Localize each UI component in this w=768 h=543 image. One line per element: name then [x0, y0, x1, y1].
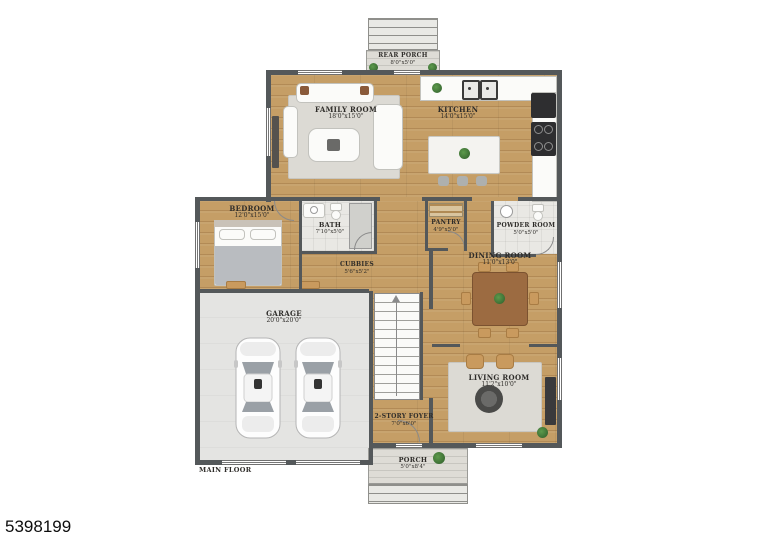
headboard-icon [214, 220, 282, 227]
bench-icon [226, 281, 246, 289]
wall-dining-stub-a [432, 344, 460, 347]
pillow-icon [300, 86, 309, 95]
stool-icon [457, 176, 468, 186]
wall-bed-bath [299, 201, 302, 291]
kitchen-sink-icon [480, 80, 498, 100]
chair-icon [461, 292, 471, 305]
car-icon [234, 336, 282, 440]
burner-icon [534, 125, 543, 134]
counter-plant-icon [432, 83, 442, 93]
pillow-icon [360, 86, 369, 95]
burner-icon [544, 125, 553, 134]
room-label-cubbies: CUBBIES 5'6"x5'2" [340, 262, 374, 275]
plant-icon [537, 427, 548, 438]
powder-sink-icon [500, 205, 513, 218]
room-label-kitchen: KITCHEN 14'0"x15'0" [438, 106, 479, 121]
garage-door-right [296, 460, 360, 465]
wall-dining-left [429, 251, 433, 309]
room-label-porch: PORCH 5'0"x8'4" [399, 457, 428, 471]
wall-garage-right [369, 291, 373, 465]
stool-icon [438, 176, 449, 186]
wall-bath-bottom [299, 251, 377, 254]
room-label-living-room: LIVING ROOM 11'2"x10'0" [469, 374, 530, 389]
plant-icon [433, 452, 445, 464]
room-label-bath: BATH 7'10"x5'0" [316, 222, 345, 236]
sofa-left-icon [283, 106, 298, 158]
room-label-family-room: FAMILY ROOM 18'0"x15'0" [315, 106, 377, 121]
kitchen-sink-icon [462, 80, 480, 100]
stool-icon [476, 176, 487, 186]
pantry-shelves-icon [429, 203, 463, 217]
opening-hall [380, 197, 422, 201]
front-porch-steps [368, 484, 468, 504]
floor-plan-canvas: REAR PORCH 8'0"x5'0" FAMILY ROOM 18'0"x1… [0, 0, 768, 543]
stove-icon [531, 122, 556, 156]
room-label-bedroom: BEDROOM 12'0"x15'0" [229, 205, 274, 220]
pillow-icon [250, 229, 276, 240]
room-label-rear-porch: REAR PORCH 8'0"x5'0" [378, 53, 427, 66]
round-coffee-table-icon [475, 385, 503, 413]
sofa-right-icon [373, 104, 403, 170]
wall-bath-right [374, 201, 377, 254]
room-label-foyer: 2-STORY FOYER 7'0"x6'0" [374, 414, 433, 427]
armchair-icon [496, 354, 514, 369]
toilet-bowl-icon [533, 211, 543, 221]
island-bowl-icon [459, 148, 470, 159]
room-label-powder-room: POWDER ROOM 5'0"x5'0" [497, 223, 556, 236]
fridge-icon [531, 93, 556, 118]
burner-icon [534, 142, 543, 151]
window-family-top [298, 70, 342, 75]
stair-direction-arrow-icon [392, 295, 400, 302]
wall-pantry-right [464, 201, 467, 251]
centerpiece-icon [494, 293, 505, 304]
wall-dining-stub-b [529, 344, 560, 347]
window-bedroom-left [195, 222, 200, 268]
vanity-sink-icon [310, 206, 318, 214]
pillow-icon [219, 229, 245, 240]
wall-pantry-left [425, 201, 428, 251]
chair-icon [529, 292, 539, 305]
room-label-garage: GARAGE 20'0"x20'0" [266, 310, 302, 325]
room-label-dining-room: DINING ROOM 11'0"x13'0" [469, 252, 532, 267]
wall-bedroom-top [195, 197, 271, 201]
media-console-icon [545, 377, 556, 425]
armchair-icon [466, 354, 484, 369]
stair-rail [396, 302, 397, 396]
tv-console-icon [272, 116, 279, 168]
wall-stairs-right [420, 292, 423, 400]
wall-bedroom-bottom [200, 289, 369, 293]
rear-porch-steps [368, 18, 438, 50]
front-door [396, 443, 422, 448]
room-label-pantry: PANTRY 4'9"x5'0" [431, 220, 461, 233]
burner-icon [544, 142, 553, 151]
chair-icon [506, 328, 519, 338]
staircase [374, 293, 420, 400]
chair-icon [478, 328, 491, 338]
window-living-right [557, 358, 562, 400]
opening-kitchen-dining [472, 197, 518, 201]
window-living-bottom [476, 443, 522, 448]
window-family-left [266, 108, 271, 156]
blanket-icon [215, 246, 281, 285]
floor-name-label: MAIN FLOOR [199, 466, 251, 474]
garage-door-left [222, 460, 286, 465]
rear-door [394, 70, 420, 75]
toilet-bowl-icon [331, 210, 341, 220]
table-tray-icon [327, 139, 340, 151]
window-dining-right [557, 262, 562, 308]
listing-id: 5398199 [5, 517, 71, 537]
wall-powder-left [491, 201, 494, 257]
bench-icon [300, 281, 320, 289]
car-icon [294, 336, 342, 440]
